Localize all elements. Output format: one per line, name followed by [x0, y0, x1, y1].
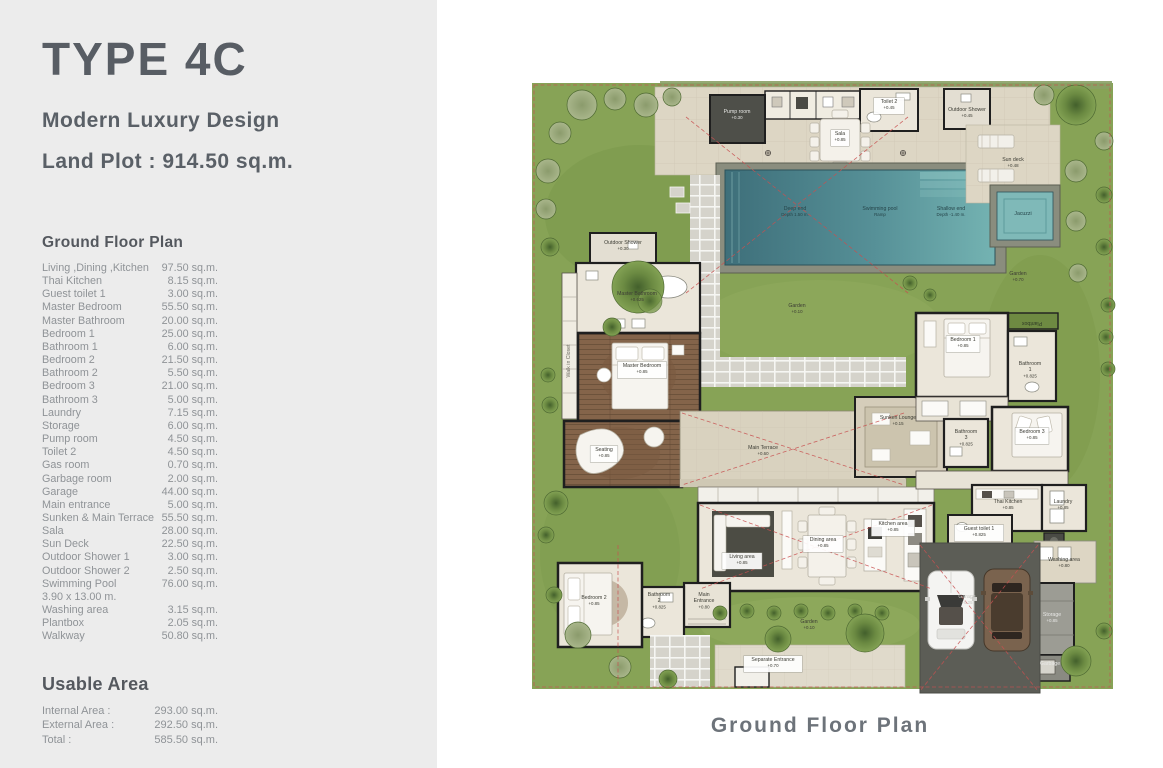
- svg-text:Jacuzzi: Jacuzzi: [1014, 211, 1031, 217]
- svg-text:Master Bedroom: Master Bedroom: [623, 363, 661, 369]
- svg-text:Living area: Living area: [729, 554, 754, 560]
- room-name: Living ,Dining ,Kitchen: [42, 262, 149, 275]
- room-area-value: 293.00 sq.m.: [154, 704, 218, 719]
- plan-caption: Ground Floor Plan: [520, 714, 1120, 738]
- plan-label: Jacuzzi: [1014, 211, 1031, 217]
- room-area-row: Sala28.00 sq.m.: [42, 525, 218, 538]
- room-area-row: Outdoor Shower 22.50 sq.m.: [42, 565, 218, 578]
- svg-text:Separate Entrance: Separate Entrance: [751, 657, 794, 663]
- floor-plan-area: Pump room+0.30Sala+0.85Toilet 2+0.45Outd…: [437, 0, 1163, 768]
- room-name: Garage: [42, 486, 78, 499]
- svg-text:+0.70: +0.70: [767, 663, 779, 668]
- room-area-value: 4.50 sq.m.: [168, 433, 218, 446]
- plan-label: Master Bedroom+0.85: [617, 362, 666, 378]
- room-name: Bedroom 2: [42, 354, 95, 367]
- room-name: Guest toilet 1: [42, 288, 106, 301]
- svg-text:Storage: Storage: [1043, 612, 1061, 618]
- room-name: Master Bathroom: [42, 315, 125, 328]
- svg-text:Bathroom: Bathroom: [1019, 361, 1042, 367]
- svg-text:+0.45: +0.45: [883, 105, 895, 110]
- svg-text:+0.30: +0.30: [731, 115, 743, 120]
- room-area-row: Total :585.50 sq.m.: [42, 733, 218, 748]
- room-area-row: Laundry7.15 sq.m.: [42, 407, 218, 420]
- room-name: Sunken & Main Terrace: [42, 512, 154, 525]
- room-area-row: Bathroom 25.50 sq.m.: [42, 367, 218, 380]
- plan-label: Kitchen area+0.85: [871, 520, 914, 536]
- room-area-value: 50.80 sq.m.: [162, 630, 218, 643]
- svg-text:1: 1: [1029, 367, 1032, 373]
- room-name: Outdoor Shower 1: [42, 551, 130, 564]
- room-name: Bathroom 3: [42, 394, 98, 407]
- svg-text:Washing area: Washing area: [1048, 557, 1080, 563]
- usable-area-list: Internal Area :293.00 sq.m.External Area…: [42, 704, 218, 748]
- room-name: Storage: [42, 420, 80, 433]
- room-area-list: Living ,Dining ,Kitchen97.50 sq.m.Thai K…: [42, 262, 218, 644]
- svg-text:Ramp: Ramp: [874, 212, 886, 217]
- svg-text:+0.15: +0.15: [892, 421, 904, 426]
- svg-text:Master Bathroom: Master Bathroom: [617, 291, 657, 297]
- svg-text:Toilet 2: Toilet 2: [881, 99, 898, 105]
- svg-text:Main Terrace: Main Terrace: [748, 445, 778, 451]
- room-area-row: Toilet 24.50 sq.m.: [42, 446, 218, 459]
- svg-text:Outdoor Shower: Outdoor Shower: [604, 240, 642, 246]
- floor-plan-illustration: Pump room+0.30Sala+0.85Toilet 2+0.45Outd…: [520, 75, 1120, 705]
- usable-area-title: Usable Area: [42, 674, 437, 695]
- svg-text:Sunken Lounge: Sunken Lounge: [880, 415, 916, 421]
- room-area-row: Sun Deck22.50 sq.m.: [42, 538, 218, 551]
- info-panel: TYPE 4C Modern Luxury Design Land Plot :…: [0, 0, 437, 768]
- svg-text:Garage: Garage: [958, 594, 975, 600]
- svg-text:Bathroom: Bathroom: [955, 429, 978, 435]
- svg-text:Sala: Sala: [835, 131, 845, 137]
- plan-label: Walk in Closet: [566, 344, 572, 378]
- svg-text:+0.85: +0.85: [1057, 505, 1069, 510]
- room-area-value: 21.50 sq.m.: [162, 354, 218, 367]
- svg-text:Garden: Garden: [800, 619, 817, 625]
- room-area-row: Bathroom 35.00 sq.m.: [42, 394, 218, 407]
- plan-label: Living area+0.85: [722, 553, 762, 569]
- svg-text:Seating: Seating: [595, 447, 613, 453]
- svg-text:Bedroom 2: Bedroom 2: [581, 595, 606, 601]
- svg-text:Main: Main: [698, 592, 709, 598]
- svg-text:Depth -1.40 m.: Depth -1.40 m.: [936, 212, 965, 217]
- plan-label: Seating+0.85: [590, 446, 618, 462]
- room-area-row: External Area :292.50 sq.m.: [42, 718, 218, 733]
- svg-text:+0.70: +0.70: [1012, 277, 1024, 282]
- room-name: Bathroom 2: [42, 367, 98, 380]
- land-plot: Land Plot : 914.50 sq.m.: [42, 150, 437, 174]
- svg-text:Garden: Garden: [788, 303, 805, 309]
- plan-label: Plantbox: [1022, 320, 1043, 326]
- svg-text:3: 3: [965, 435, 968, 441]
- room-area-value: 3.00 sq.m.: [168, 551, 218, 564]
- plan-label: Deep endDepth 1.50 m.: [781, 206, 809, 217]
- svg-text:+0.30: +0.30: [617, 246, 629, 251]
- room-area-row: Main entrance5.00 sq.m.: [42, 499, 218, 512]
- svg-text:+0.825: +0.825: [972, 532, 986, 537]
- room-area-value: 4.50 sq.m.: [168, 446, 218, 459]
- svg-text:Depth 1.50 m.: Depth 1.50 m.: [781, 212, 809, 217]
- room-area-row: Bathroom 16.00 sq.m.: [42, 341, 218, 354]
- page: TYPE 4C Modern Luxury Design Land Plot :…: [0, 0, 1163, 768]
- svg-text:+0.10: +0.10: [803, 625, 815, 630]
- svg-text:+0.85: +0.85: [817, 543, 829, 548]
- svg-text:Deep end: Deep end: [784, 206, 807, 212]
- room-area-value: 6.00 sq.m.: [168, 341, 218, 354]
- room-name: External Area :: [42, 718, 114, 733]
- room-area-value: 585.50 sq.m.: [154, 733, 218, 748]
- room-name: Total :: [42, 733, 71, 748]
- svg-text:+0.825: +0.825: [959, 441, 973, 446]
- svg-text:+0.80: +0.80: [1058, 563, 1070, 568]
- room-name: Bathroom 1: [42, 341, 98, 354]
- page-title: TYPE 4C: [42, 36, 437, 82]
- svg-text:+0.85: +0.85: [636, 369, 648, 374]
- room-area-value: 21.00 sq.m.: [162, 380, 218, 393]
- room-area-value: 3.00 sq.m.: [168, 288, 218, 301]
- room-area-row: Internal Area :293.00 sq.m.: [42, 704, 218, 719]
- svg-text:+0.85: +0.85: [957, 343, 969, 348]
- room-area-value: 8.15 sq.m.: [168, 275, 218, 288]
- room-name: Toilet 2: [42, 446, 76, 459]
- plan-label: Toilet 2+0.45: [874, 98, 905, 114]
- svg-text:+0.85: +0.85: [1026, 435, 1038, 440]
- room-name: Outdoor Shower 2: [42, 565, 130, 578]
- room-area-row: 3.90 x 13.00 m.: [42, 591, 218, 604]
- room-area-value: 97.50 sq.m.: [162, 262, 218, 275]
- svg-text:Sun deck: Sun deck: [1002, 157, 1024, 163]
- room-area-value: 292.50 sq.m.: [154, 718, 218, 733]
- room-area-row: Outdoor Shower 13.00 sq.m.: [42, 551, 218, 564]
- room-area-value: 6.00 sq.m.: [168, 420, 218, 433]
- svg-text:Entrance: Entrance: [694, 598, 715, 604]
- svg-text:2: 2: [658, 598, 661, 604]
- room-area-row: Garbage room2.00 sq.m.: [42, 473, 218, 486]
- plan-label: Separate Entrance+0.70: [744, 656, 803, 672]
- plan-label: Bedroom 3+0.85: [1015, 428, 1049, 444]
- room-area-row: Guest toilet 13.00 sq.m.: [42, 288, 218, 301]
- room-area-row: Plantbox2.05 sq.m.: [42, 617, 218, 630]
- room-area-value: 22.50 sq.m.: [162, 538, 218, 551]
- room-name: Gas room: [42, 459, 89, 472]
- room-area-row: Bedroom 221.50 sq.m.: [42, 354, 218, 367]
- svg-text:+0.625: +0.625: [630, 297, 644, 302]
- svg-text:Pump room: Pump room: [724, 109, 751, 115]
- svg-text:+0.85: +0.85: [598, 453, 610, 458]
- svg-text:Bathroom: Bathroom: [648, 592, 671, 598]
- room-area-value: 2.05 sq.m.: [168, 617, 218, 630]
- svg-text:+0.85: +0.85: [736, 560, 748, 565]
- svg-text:+0.80: +0.80: [698, 604, 710, 609]
- svg-text:Outdoor Shower: Outdoor Shower: [948, 107, 986, 113]
- svg-text:Bedroom 3: Bedroom 3: [1019, 429, 1044, 435]
- room-area-value: 44.00 sq.m.: [162, 486, 218, 499]
- room-area-row: Washing area3.15 sq.m.: [42, 604, 218, 617]
- car-white: [925, 571, 977, 649]
- svg-text:Bedroom 1: Bedroom 1: [950, 337, 975, 343]
- room-area-row: Gas room0.70 sq.m.: [42, 459, 218, 472]
- plan-label: Bedroom 1+0.85: [946, 336, 980, 352]
- svg-text:+0.85: +0.85: [1002, 505, 1014, 510]
- plan-label: Guest toilet 1+0.825: [954, 525, 1003, 541]
- room-area-value: 0.70 sq.m.: [168, 459, 218, 472]
- room-name: Garbage room: [42, 473, 112, 486]
- plan-label: Sala+0.85: [831, 130, 849, 146]
- room-area-row: Walkway50.80 sq.m.: [42, 630, 218, 643]
- room-area-row: Master Bathroom20.00 sq.m.: [42, 315, 218, 328]
- room-area-row: Sunken & Main Terrace55.50 sq.m.: [42, 512, 218, 525]
- room-area-row: Swimming Pool76.00 sq.m.: [42, 578, 218, 591]
- svg-text:Walk in Closet: Walk in Closet: [566, 344, 572, 378]
- svg-text:Kitchen area: Kitchen area: [878, 521, 907, 527]
- room-name: Bedroom 3: [42, 380, 95, 393]
- plan-swimming-pool: [716, 163, 1006, 273]
- svg-text:+0.60: +0.60: [757, 451, 769, 456]
- svg-text:Plantbox: Plantbox: [1022, 320, 1043, 326]
- room-area-value: 3.15 sq.m.: [168, 604, 218, 617]
- room-name: 3.90 x 13.00 m.: [42, 591, 116, 604]
- room-name: Thai Kitchen: [42, 275, 102, 288]
- room-area-value: 2.50 sq.m.: [168, 565, 218, 578]
- room-name: Internal Area :: [42, 704, 111, 719]
- svg-text:+0.85: +0.85: [588, 601, 600, 606]
- subtitle: Modern Luxury Design: [42, 109, 437, 133]
- svg-text:+0.85: +0.85: [834, 137, 846, 142]
- room-name: Laundry: [42, 407, 81, 420]
- svg-text:Laundry: Laundry: [1054, 499, 1073, 505]
- svg-text:+0.85: +0.85: [1046, 618, 1058, 623]
- room-area-value: 7.15 sq.m.: [168, 407, 218, 420]
- room-list-title: Ground Floor Plan: [42, 234, 437, 252]
- svg-text:Guest toilet 1: Guest toilet 1: [964, 526, 995, 532]
- room-name: Walkway: [42, 630, 85, 643]
- room-area-row: Bedroom 125.00 sq.m.: [42, 328, 218, 341]
- plan-label: Shallow endDepth -1.40 m.: [936, 206, 965, 217]
- room-area-row: Master Bedroom55.50 sq.m.: [42, 301, 218, 314]
- room-area-value: 20.00 sq.m.: [162, 315, 218, 328]
- svg-text:+0.825: +0.825: [652, 604, 666, 609]
- room-area-row: Garage44.00 sq.m.: [42, 486, 218, 499]
- room-name: Sala: [42, 525, 64, 538]
- room-area-value: 5.00 sq.m.: [168, 394, 218, 407]
- room-area-value: 2.00 sq.m.: [168, 473, 218, 486]
- car-brown: [981, 569, 1033, 651]
- svg-text:Garbage: Garbage: [1040, 661, 1060, 667]
- room-area-value: 55.50 sq.m.: [162, 512, 218, 525]
- room-name: Bedroom 1: [42, 328, 95, 341]
- room-area-row: Living ,Dining ,Kitchen97.50 sq.m.: [42, 262, 218, 275]
- room-area-value: 76.00 sq.m.: [162, 578, 218, 591]
- svg-text:Thai Kitchen: Thai Kitchen: [994, 499, 1023, 505]
- svg-text:+0.45: +0.45: [961, 113, 973, 118]
- svg-text:Dining area: Dining area: [810, 537, 837, 543]
- room-area-row: Pump room4.50 sq.m.: [42, 433, 218, 446]
- plan-label: Dining area+0.85: [803, 536, 843, 552]
- room-name: Swimming Pool: [42, 578, 116, 591]
- plan-garage-driveway: [920, 543, 1040, 693]
- room-area-row: Bedroom 321.00 sq.m.: [42, 380, 218, 393]
- svg-text:Garden: Garden: [1009, 271, 1026, 277]
- room-area-value: 5.50 sq.m.: [168, 367, 218, 380]
- svg-text:Shallow end: Shallow end: [937, 206, 965, 212]
- svg-text:+0.25: +0.25: [961, 600, 973, 605]
- room-area-row: Storage6.00 sq.m.: [42, 420, 218, 433]
- svg-text:+0.10: +0.10: [791, 309, 803, 314]
- svg-text:+0.48: +0.48: [1007, 163, 1019, 168]
- room-area-value: 25.00 sq.m.: [162, 328, 218, 341]
- room-area-value: 5.00 sq.m.: [168, 499, 218, 512]
- svg-text:+0.825: +0.825: [1023, 373, 1037, 378]
- room-area-row: Thai Kitchen8.15 sq.m.: [42, 275, 218, 288]
- room-area-value: 55.50 sq.m.: [162, 301, 218, 314]
- plan-label: Garbage: [1040, 661, 1060, 667]
- room-name: Plantbox: [42, 617, 84, 630]
- svg-text:Swimming pool: Swimming pool: [862, 206, 897, 212]
- room-name: Washing area: [42, 604, 108, 617]
- room-name: Pump room: [42, 433, 98, 446]
- room-name: Sun Deck: [42, 538, 89, 551]
- room-name: Master Bedroom: [42, 301, 122, 314]
- room-area-value: 28.00 sq.m.: [162, 525, 218, 538]
- svg-text:+0.85: +0.85: [887, 527, 899, 532]
- room-name: Main entrance: [42, 499, 110, 512]
